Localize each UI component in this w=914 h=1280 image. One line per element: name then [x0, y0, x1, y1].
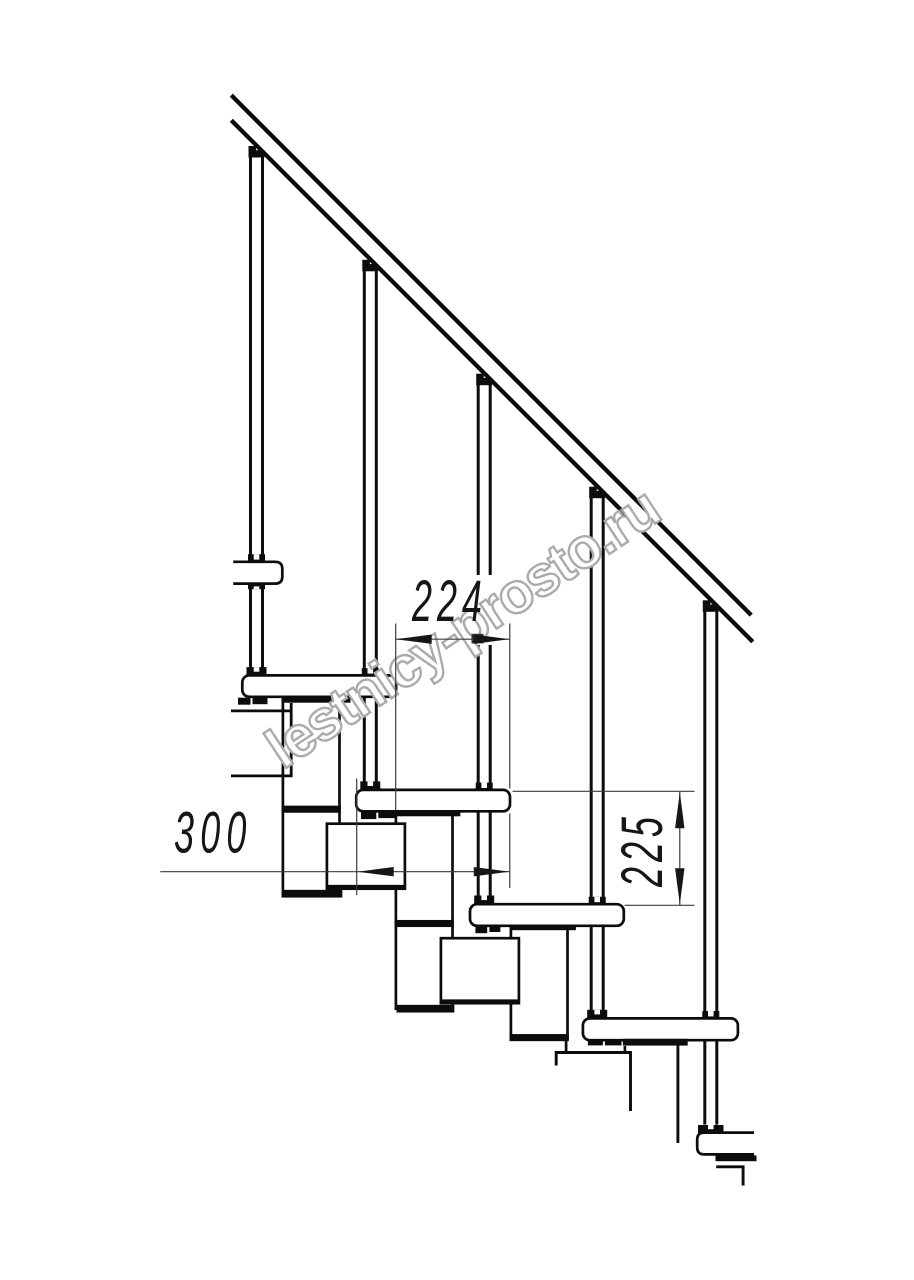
svg-text:300: 300	[174, 801, 253, 866]
svg-text:225: 225	[610, 812, 675, 888]
svg-text:224: 224	[411, 569, 487, 634]
